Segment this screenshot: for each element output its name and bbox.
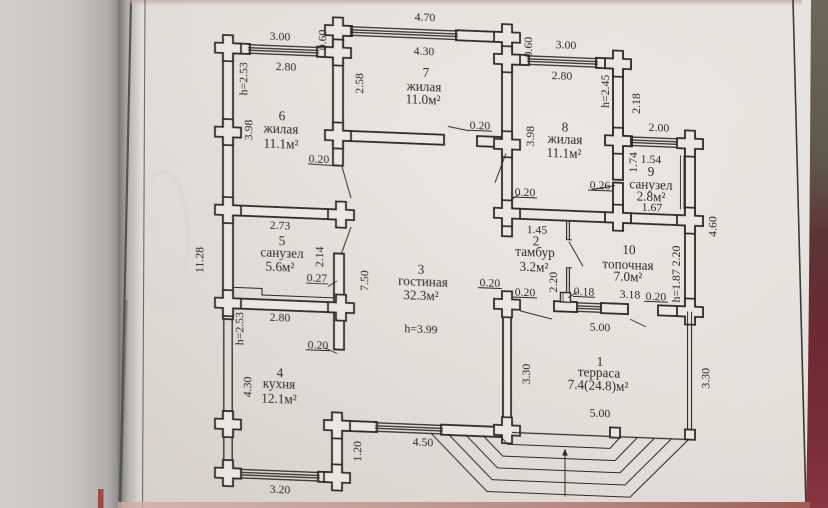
svg-text:5.00: 5.00 xyxy=(590,406,611,421)
svg-text:2.80: 2.80 xyxy=(270,310,291,325)
svg-text:4.30: 4.30 xyxy=(414,44,435,59)
svg-text:11.28: 11.28 xyxy=(192,247,206,274)
svg-text:h=2.53: h=2.53 xyxy=(232,312,246,346)
svg-text:2.58: 2.58 xyxy=(352,73,366,94)
svg-text:2.18: 2.18 xyxy=(629,93,643,114)
svg-text:2.80: 2.80 xyxy=(276,59,297,74)
svg-text:32.3м²: 32.3м² xyxy=(403,287,438,303)
svg-text:3.30: 3.30 xyxy=(519,363,533,384)
svg-text:h=2.53: h=2.53 xyxy=(236,62,250,96)
svg-text:2.73: 2.73 xyxy=(270,218,291,233)
svg-text:0.20: 0.20 xyxy=(309,152,330,167)
svg-text:7.50: 7.50 xyxy=(357,270,371,291)
svg-text:2.14: 2.14 xyxy=(312,246,326,267)
svg-text:0.18: 0.18 xyxy=(574,284,595,299)
svg-text:1.20: 1.20 xyxy=(350,441,364,462)
svg-text:12.1м²: 12.1м² xyxy=(261,390,296,406)
svg-text:3.98: 3.98 xyxy=(241,119,255,140)
svg-text:7.0м²: 7.0м² xyxy=(614,268,643,284)
svg-text:10: 10 xyxy=(622,242,636,258)
svg-text:7.4(24.8)м²: 7.4(24.8)м² xyxy=(568,377,629,394)
svg-text:0.20: 0.20 xyxy=(515,185,536,200)
svg-text:2.20: 2.20 xyxy=(546,271,560,292)
svg-text:2.80: 2.80 xyxy=(552,68,573,83)
svg-text:2.00: 2.00 xyxy=(649,120,670,135)
svg-text:3.00: 3.00 xyxy=(270,29,291,44)
svg-text:3.20: 3.20 xyxy=(270,482,291,497)
svg-text:тамбур: тамбур xyxy=(515,243,555,260)
svg-text:кухня: кухня xyxy=(263,375,296,391)
svg-text:0.60: 0.60 xyxy=(315,29,329,50)
svg-text:11.1м²: 11.1м² xyxy=(547,145,582,161)
svg-text:7: 7 xyxy=(423,65,430,80)
svg-text:3.98: 3.98 xyxy=(523,126,537,147)
svg-text:h=3.99: h=3.99 xyxy=(404,321,437,336)
svg-text:0.20: 0.20 xyxy=(308,338,329,353)
svg-text:h=1.87 2.20: h=1.87 2.20 xyxy=(669,245,683,302)
svg-text:0.27: 0.27 xyxy=(307,270,328,285)
svg-text:4.30: 4.30 xyxy=(240,376,254,397)
svg-text:h=2.45: h=2.45 xyxy=(598,74,612,108)
svg-text:0.20: 0.20 xyxy=(515,285,536,300)
svg-text:0.20: 0.20 xyxy=(470,118,491,133)
svg-text:5.00: 5.00 xyxy=(590,320,611,335)
svg-text:3.2м²: 3.2м² xyxy=(520,259,549,275)
svg-text:11.1м²: 11.1м² xyxy=(264,135,299,151)
svg-text:жилая: жилая xyxy=(263,120,299,136)
svg-text:3.30: 3.30 xyxy=(698,368,712,389)
svg-text:3.18: 3.18 xyxy=(620,287,641,302)
svg-text:0.20: 0.20 xyxy=(480,275,501,290)
svg-text:3.00: 3.00 xyxy=(556,37,577,52)
svg-text:0.60: 0.60 xyxy=(521,36,535,57)
svg-text:4.50: 4.50 xyxy=(413,435,434,450)
svg-text:0.26: 0.26 xyxy=(590,178,611,193)
svg-text:4.70: 4.70 xyxy=(415,10,436,25)
svg-text:11.0м²: 11.0м² xyxy=(406,91,441,107)
svg-text:1.67: 1.67 xyxy=(642,200,663,215)
svg-text:1.74: 1.74 xyxy=(626,152,640,173)
svg-text:4.60: 4.60 xyxy=(705,216,719,237)
svg-text:5.6м²: 5.6м² xyxy=(266,258,295,274)
svg-text:0.20: 0.20 xyxy=(646,289,667,304)
